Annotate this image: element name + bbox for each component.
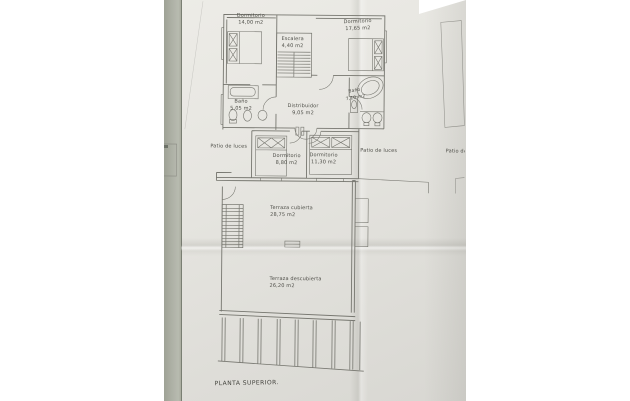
patio-label-left: Patio de luces: [204, 143, 254, 150]
room-label-terraza-descubierta: Terraza descubierta 26,20 m2: [269, 276, 349, 290]
room-area: 11,30 m2: [299, 159, 349, 166]
room-area: 14,00 m2: [226, 19, 276, 26]
patio-label-far-right: Patio de luces: [446, 148, 465, 155]
room-label-dormitorio-2: Dormitorio 17,65 m2: [333, 18, 384, 33]
patio-name: Patio de luces: [354, 148, 404, 155]
patio-name: Patio de luces: [204, 143, 254, 150]
walls: [215, 14, 430, 321]
plan-layer: Dormitorio 14,00 m2 Dormitorio 17,65 m2 …: [164, 0, 466, 401]
room-label-distribuidor: Distribuidor 9,05 m2: [278, 103, 328, 117]
room-label-dormitorio-1: Dormitorio 14,00 m2: [226, 12, 276, 26]
patio-label-right: Patio de luces: [354, 148, 404, 155]
screenshot-canvas: Dormitorio 14,00 m2 Dormitorio 17,65 m2 …: [0, 0, 630, 401]
room-label-escalera: Escalera 4,40 m2: [268, 36, 318, 50]
room-area: 28,75 m2: [270, 211, 340, 218]
room-label-bano-1: Baño 5,05 m2: [216, 98, 266, 112]
room-area: 26,20 m2: [269, 282, 349, 289]
room-label-terraza-cubierta: Terraza cubierta 28,75 m2: [270, 205, 340, 219]
railing: [218, 317, 364, 371]
patio-name: Patio de luces: [446, 148, 465, 155]
room-area: 4,40 m2: [268, 42, 318, 49]
plan-title: PLANTA SUPERIOR.: [215, 379, 279, 387]
floor-plan-drawing: [164, 0, 466, 401]
floorplan-photo: Dormitorio 14,00 m2 Dormitorio 17,65 m2 …: [164, 0, 466, 401]
room-area: 9,05 m2: [278, 110, 328, 117]
room-area: 5,05 m2: [216, 105, 266, 112]
room-label-dormitorio-4: Dormitorio 11,30 m2: [299, 152, 349, 166]
